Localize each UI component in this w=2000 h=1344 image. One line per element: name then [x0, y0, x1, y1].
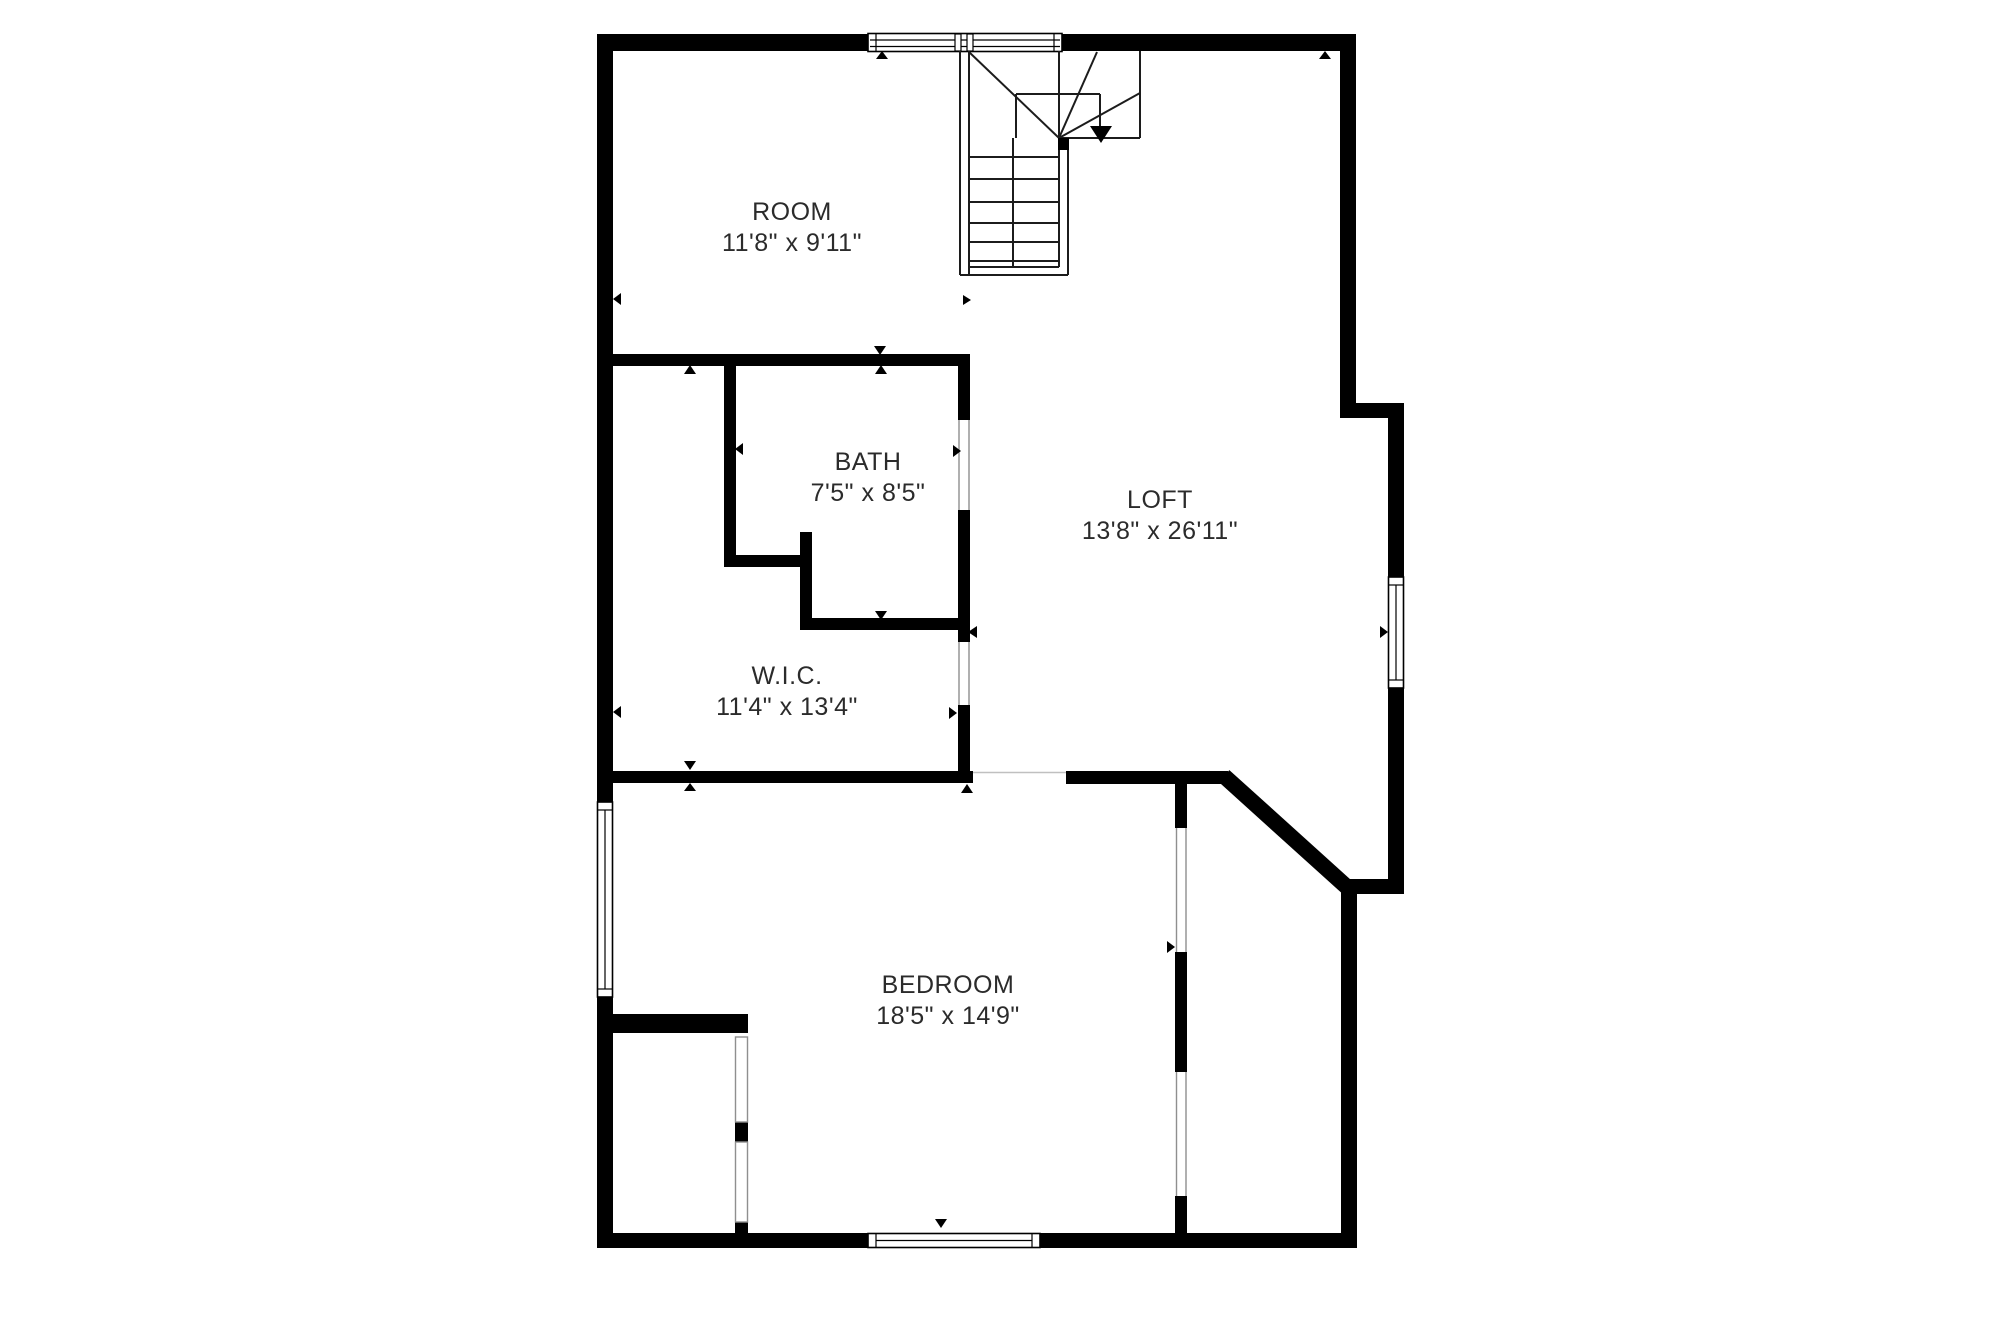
- wall-wic-south: [613, 771, 973, 783]
- wall-right-upper: [1340, 34, 1356, 418]
- window-top-mullion: [955, 34, 961, 51]
- marker-up-icon: [1319, 51, 1331, 59]
- floor-plan-drawing: [0, 0, 2000, 1344]
- wall-room-south: [613, 354, 970, 366]
- room-name: W.I.C.: [716, 661, 858, 692]
- room-dimensions: 7'5" x 8'5": [811, 478, 926, 509]
- wall-closet-east-bot: [735, 1222, 748, 1248]
- room-name: BATH: [811, 447, 926, 478]
- floor-plan-canvas: ROOM 11'8" x 9'11" BATH 7'5" x 8'5" LOFT…: [0, 0, 2000, 1344]
- wall-bedroom-diagonal: [1224, 776, 1348, 888]
- wic-door-opening: [959, 642, 969, 705]
- wall-closet-east-mid: [735, 1122, 748, 1142]
- window-left: [598, 802, 613, 997]
- marker-right-icon: [953, 445, 961, 457]
- bedroom-door-opening-1: [1177, 828, 1187, 952]
- bath-door-opening: [959, 420, 969, 510]
- window-right: [1389, 577, 1404, 688]
- room-label-room: ROOM 11'8" x 9'11": [722, 197, 862, 259]
- stair-newel-post: [1058, 138, 1069, 150]
- wall-bedroom-north: [1066, 771, 1228, 784]
- wall-right-lower: [1341, 879, 1357, 1248]
- marker-up-icon: [875, 365, 887, 374]
- marker-right-icon: [963, 295, 971, 305]
- stair-treads: [969, 138, 1059, 267]
- windows: [598, 34, 1404, 1248]
- room-dimensions: 18'5" x 14'9": [876, 1001, 1020, 1032]
- marker-left-icon: [613, 706, 621, 718]
- wall-closet-north: [613, 1014, 748, 1033]
- wall-bedroom-east-seg1: [1175, 783, 1187, 828]
- wall-bath-east-seg1: [958, 366, 970, 420]
- room-dimensions: 11'8" x 9'11": [722, 228, 862, 259]
- room-label-bath: BATH 7'5" x 8'5": [811, 447, 926, 509]
- wall-left: [597, 34, 613, 1248]
- wall-bath-step-south: [724, 555, 812, 567]
- marker-down-icon: [684, 761, 696, 770]
- window-top: [868, 34, 1062, 52]
- exterior-walls: [597, 34, 1404, 1248]
- staircase: [960, 51, 1140, 275]
- marker-left-icon: [735, 443, 743, 455]
- marker-right-icon: [1167, 941, 1175, 953]
- bedroom-door-opening-2: [1177, 1072, 1187, 1196]
- window-bottom: [868, 1234, 1040, 1248]
- wall-bath-east-seg2: [958, 510, 970, 642]
- marker-up-icon: [961, 784, 973, 793]
- wall-bedroom-east-seg2: [1175, 952, 1187, 1072]
- marker-up-icon: [684, 365, 696, 374]
- marker-right-icon: [1380, 626, 1388, 638]
- room-label-bedroom: BEDROOM 18'5" x 14'9": [876, 970, 1020, 1032]
- room-name: LOFT: [1082, 485, 1238, 516]
- wall-bedroom-east-seg3: [1175, 1196, 1187, 1233]
- room-name: ROOM: [722, 197, 862, 228]
- room-label-loft: LOFT 13'8" x 26'11": [1082, 485, 1238, 547]
- room-dimensions: 11'4" x 13'4": [716, 692, 858, 723]
- wall-bath-step-east: [800, 532, 812, 630]
- wall-bath-south: [800, 618, 958, 630]
- room-name: BEDROOM: [876, 970, 1020, 1001]
- marker-down-icon: [874, 346, 886, 355]
- marker-left-icon: [613, 293, 621, 305]
- marker-up-icon: [684, 783, 696, 791]
- room-label-wic: W.I.C. 11'4" x 13'4": [716, 661, 858, 723]
- room-dimensions: 13'8" x 26'11": [1082, 516, 1238, 547]
- marker-down-icon: [935, 1219, 947, 1228]
- wall-bath-west: [724, 366, 736, 566]
- marker-right-icon: [949, 707, 957, 719]
- stair-direction-arrow: [1090, 126, 1112, 143]
